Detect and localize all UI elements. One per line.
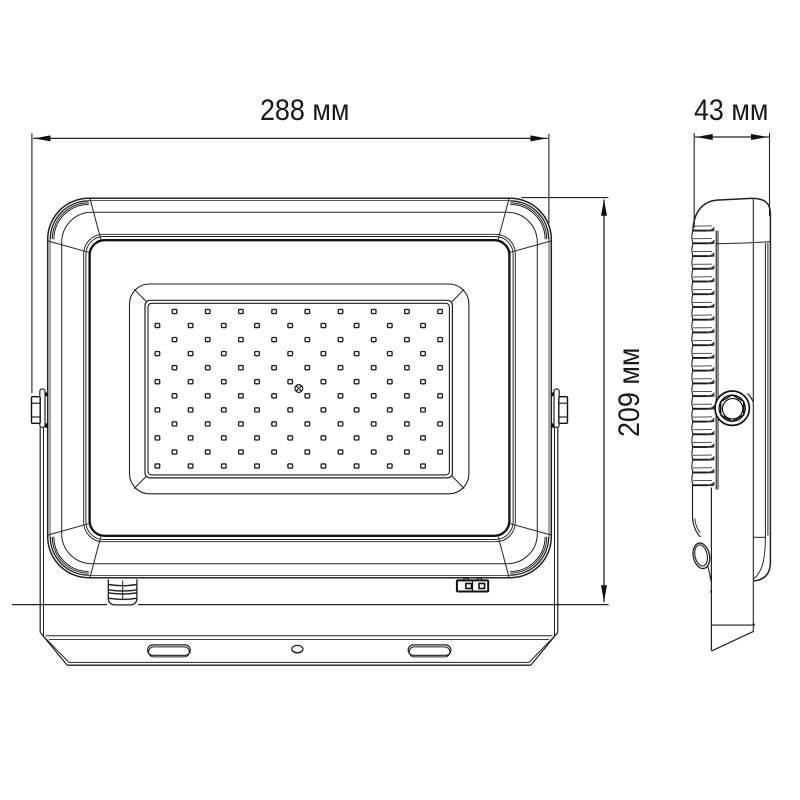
svg-text:288 мм: 288 мм — [260, 94, 350, 127]
svg-text:209 мм: 209 мм — [613, 348, 646, 438]
svg-text:43 мм: 43 мм — [694, 94, 769, 127]
